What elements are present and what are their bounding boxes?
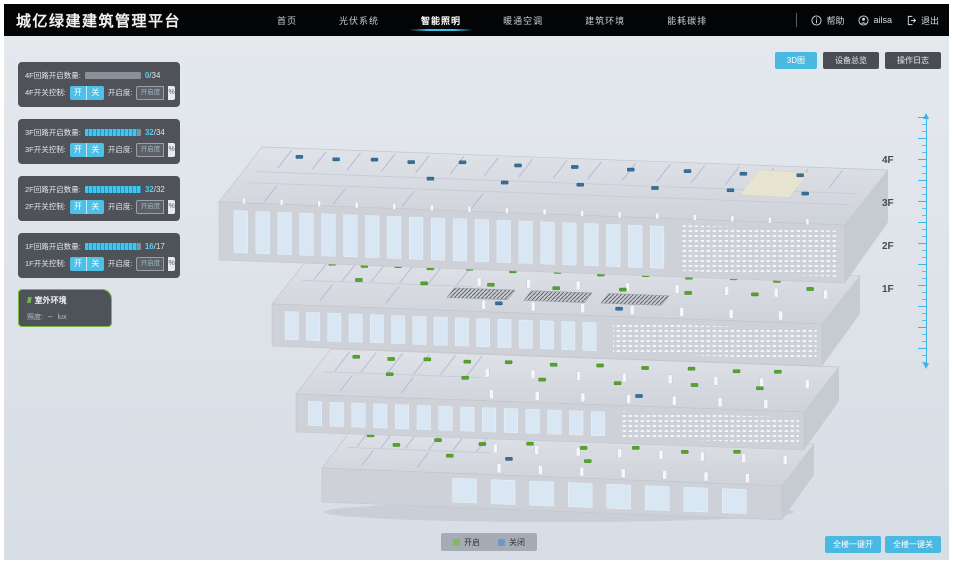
light-marker-on <box>353 355 360 358</box>
top-nav: 城亿绿建建筑管理平台 首页 光伏系统 智能照明 暖通空调 建筑环境 能耗碳排 帮… <box>4 4 949 36</box>
switch-label-1f: 1F开关控制: <box>25 258 66 269</box>
floor-ruler[interactable] <box>916 112 930 370</box>
header-divider <box>796 13 797 27</box>
dim-label-3f: 开启度: <box>108 144 133 155</box>
dim-input-4f[interactable] <box>136 86 164 100</box>
global-control-group: 全楼一键开 全楼一键关 <box>825 536 941 553</box>
circuit-count-label-1f: 1F回路开启数量: <box>25 241 81 252</box>
light-marker-on <box>435 439 442 442</box>
switch-off-button-4f[interactable]: 关 <box>87 86 104 100</box>
light-marker-on <box>424 358 431 361</box>
light-marker-off <box>727 189 734 192</box>
legend-label-on: 开启 <box>464 537 480 548</box>
dim-input-1f[interactable] <box>136 257 164 271</box>
info-icon <box>811 15 822 26</box>
illuminance-label: 照度: <box>27 312 43 322</box>
switch-on-button-2f[interactable]: 开 <box>70 200 87 214</box>
light-marker-on <box>774 370 781 373</box>
status-legend: 开启 关闭 <box>441 533 537 551</box>
light-marker-off <box>802 192 809 195</box>
help-link[interactable]: 帮助 <box>811 14 844 27</box>
legend-item-on: 开启 <box>453 537 480 548</box>
light-marker-off <box>684 170 691 173</box>
nav-item-home[interactable]: 首页 <box>271 4 303 36</box>
main-content: 4F回路开启数量: 0/34 4F开关控制: 开 关 开启度: % 3F回路开启… <box>4 36 949 560</box>
light-marker-on <box>619 288 626 291</box>
light-marker-off <box>427 177 434 180</box>
device-overview-button[interactable]: 设备总览 <box>823 52 879 69</box>
light-marker-off <box>371 158 378 161</box>
legend-label-off: 关闭 <box>509 537 525 548</box>
light-marker-off <box>459 161 466 164</box>
light-marker-on <box>584 460 591 463</box>
light-marker-on <box>734 450 741 453</box>
switch-on-button-1f[interactable]: 开 <box>70 257 87 271</box>
operation-log-button[interactable]: 操作日志 <box>885 52 941 69</box>
logout-icon <box>906 15 917 26</box>
percent-button-1f[interactable]: % <box>168 257 174 271</box>
light-marker-on <box>505 361 512 364</box>
nav-item-pv-system[interactable]: 光伏系统 <box>333 4 385 36</box>
light-marker-on <box>685 291 692 294</box>
light-marker-off <box>515 164 522 167</box>
user-avatar-icon <box>858 15 869 26</box>
circuit-count-label-4f: 4F回路开启数量: <box>25 70 81 81</box>
dim-input-3f[interactable] <box>136 143 164 157</box>
light-marker-on <box>553 287 560 290</box>
illuminance-unit: lux <box>58 314 67 321</box>
light-marker-on <box>487 283 494 286</box>
switch-label-3f: 3F开关控制: <box>25 144 66 155</box>
main-menu: 首页 光伏系统 智能照明 暖通空调 建筑环境 能耗碳排 <box>271 4 713 36</box>
switch-segment-3f: 开 关 <box>70 143 104 157</box>
logout-label: 退出 <box>921 14 939 27</box>
light-marker-off <box>740 172 747 175</box>
circuit-count-label-2f: 2F回路开启数量: <box>25 184 81 195</box>
circuit-value-2f: 32/32 <box>145 185 165 194</box>
all-floors-on-button[interactable]: 全楼一键开 <box>825 536 881 553</box>
floor-panel-4f: 4F回路开启数量: 0/34 4F开关控制: 开 关 开启度: % <box>18 62 180 107</box>
light-marker-on <box>462 376 469 379</box>
user-name: ailsa <box>873 15 892 25</box>
light-marker-off <box>408 161 415 164</box>
light-marker-off <box>635 394 642 397</box>
light-marker-on <box>539 378 546 381</box>
light-marker-on <box>681 450 688 453</box>
light-marker-on <box>807 287 814 290</box>
nav-item-energy-carbon[interactable]: 能耗碳排 <box>661 4 713 36</box>
switch-label-2f: 2F开关控制: <box>25 201 66 212</box>
light-marker-off <box>627 168 634 171</box>
nav-item-smart-lighting[interactable]: 智能照明 <box>415 4 467 36</box>
switch-segment-4f: 开 关 <box>70 86 104 100</box>
legend-swatch-on <box>453 539 460 546</box>
floor-panel-1f: 1F回路开启数量: 16/17 1F开关控制: 开 关 开启度: % <box>18 233 180 278</box>
circuit-value-3f: 32/34 <box>145 128 165 137</box>
ruler-line <box>926 117 927 365</box>
light-marker-off <box>616 307 623 310</box>
light-marker-off <box>577 183 584 186</box>
floor-axis-label-4f: 4F <box>882 155 904 166</box>
dim-input-2f[interactable] <box>136 200 164 214</box>
header-right: 帮助 ailsa 退出 <box>796 13 939 27</box>
floor-panel-3f: 3F回路开启数量: 32/34 3F开关控制: 开 关 开启度: % <box>18 119 180 164</box>
percent-button-3f[interactable]: % <box>168 143 174 157</box>
ruler-long-ticks <box>918 117 926 365</box>
app-title: 城亿绿建建筑管理平台 <box>16 10 181 31</box>
light-marker-off <box>797 174 804 177</box>
outdoor-env-panel: /// 室外环境 照度: -- lux <box>18 289 112 327</box>
switch-off-button-2f[interactable]: 关 <box>87 200 104 214</box>
light-marker-on <box>446 454 453 457</box>
outdoor-env-title: 室外环境 <box>35 295 67 306</box>
light-marker-on <box>421 282 428 285</box>
light-marker-on <box>751 293 758 296</box>
view-switch-group: 3D图 设备总览 操作日志 <box>775 52 941 69</box>
light-marker-off <box>333 158 340 161</box>
light-marker-on <box>464 360 471 363</box>
switch-segment-2f: 开 关 <box>70 200 104 214</box>
building-3d-view[interactable] <box>4 36 949 560</box>
switch-on-button-4f[interactable]: 开 <box>70 86 87 100</box>
logout-link[interactable]: 退出 <box>906 14 939 27</box>
light-marker-on <box>688 367 695 370</box>
circuit-value-4f: 0/34 <box>145 71 161 80</box>
light-marker-on <box>479 442 486 445</box>
light-marker-on <box>386 373 393 376</box>
light-marker-off <box>505 457 512 460</box>
light-marker-off <box>651 186 658 189</box>
dim-label-4f: 开启度: <box>108 87 133 98</box>
light-marker-on <box>597 364 604 367</box>
legend-item-off: 关闭 <box>498 537 525 548</box>
light-marker-on <box>393 443 400 446</box>
switch-off-button-3f[interactable]: 关 <box>87 143 104 157</box>
light-marker-on <box>388 357 395 360</box>
circuit-progress-4f <box>85 72 141 79</box>
floor-axis-label-3f: 3F <box>882 198 904 209</box>
outdoor-env-icon: /// <box>27 296 31 305</box>
illuminance-value: -- <box>48 314 53 321</box>
light-marker-off <box>495 302 502 305</box>
light-marker-on <box>733 370 740 373</box>
dim-label-2f: 开启度: <box>108 201 133 212</box>
help-label: 帮助 <box>826 14 844 27</box>
light-marker-off <box>501 181 508 184</box>
user-menu[interactable]: ailsa <box>858 15 892 26</box>
light-marker-on <box>527 442 534 445</box>
light-marker-on <box>580 446 587 449</box>
light-marker-off <box>296 155 303 158</box>
light-marker-off <box>571 165 578 168</box>
dim-label-1f: 开启度: <box>108 258 133 269</box>
light-marker-on <box>756 387 763 390</box>
floor-axis-label-2f: 2F <box>882 241 904 252</box>
switch-label-4f: 4F开关控制: <box>25 87 66 98</box>
view-3d-button[interactable]: 3D图 <box>775 52 817 69</box>
light-marker-on <box>614 382 621 385</box>
circuit-count-label-3f: 3F回路开启数量: <box>25 127 81 138</box>
light-marker-on <box>355 278 362 281</box>
circuit-progress-2f <box>85 186 141 193</box>
floor-panel-2f: 2F回路开启数量: 32/32 2F开关控制: 开 关 开启度: % <box>18 176 180 221</box>
switch-segment-1f: 开 关 <box>70 257 104 271</box>
circuit-progress-3f <box>85 129 141 136</box>
percent-button-2f[interactable]: % <box>168 200 174 214</box>
floor-axis-label-1f: 1F <box>882 284 904 295</box>
light-marker-on <box>642 366 649 369</box>
nav-item-building-env[interactable]: 建筑环境 <box>579 4 631 36</box>
light-marker-on <box>550 363 557 366</box>
percent-button-4f[interactable]: % <box>168 86 174 100</box>
app-window: 城亿绿建建筑管理平台 首页 光伏系统 智能照明 暖通空调 建筑环境 能耗碳排 帮… <box>4 4 949 560</box>
circuit-progress-1f <box>85 243 141 250</box>
light-marker-on <box>632 446 639 449</box>
switch-on-button-3f[interactable]: 开 <box>70 143 87 157</box>
light-marker-on <box>691 383 698 386</box>
legend-swatch-off <box>498 539 505 546</box>
circuit-value-1f: 16/17 <box>145 242 165 251</box>
nav-item-hvac[interactable]: 暖通空调 <box>497 4 549 36</box>
switch-off-button-1f[interactable]: 关 <box>87 257 104 271</box>
all-floors-off-button[interactable]: 全楼一键关 <box>885 536 941 553</box>
